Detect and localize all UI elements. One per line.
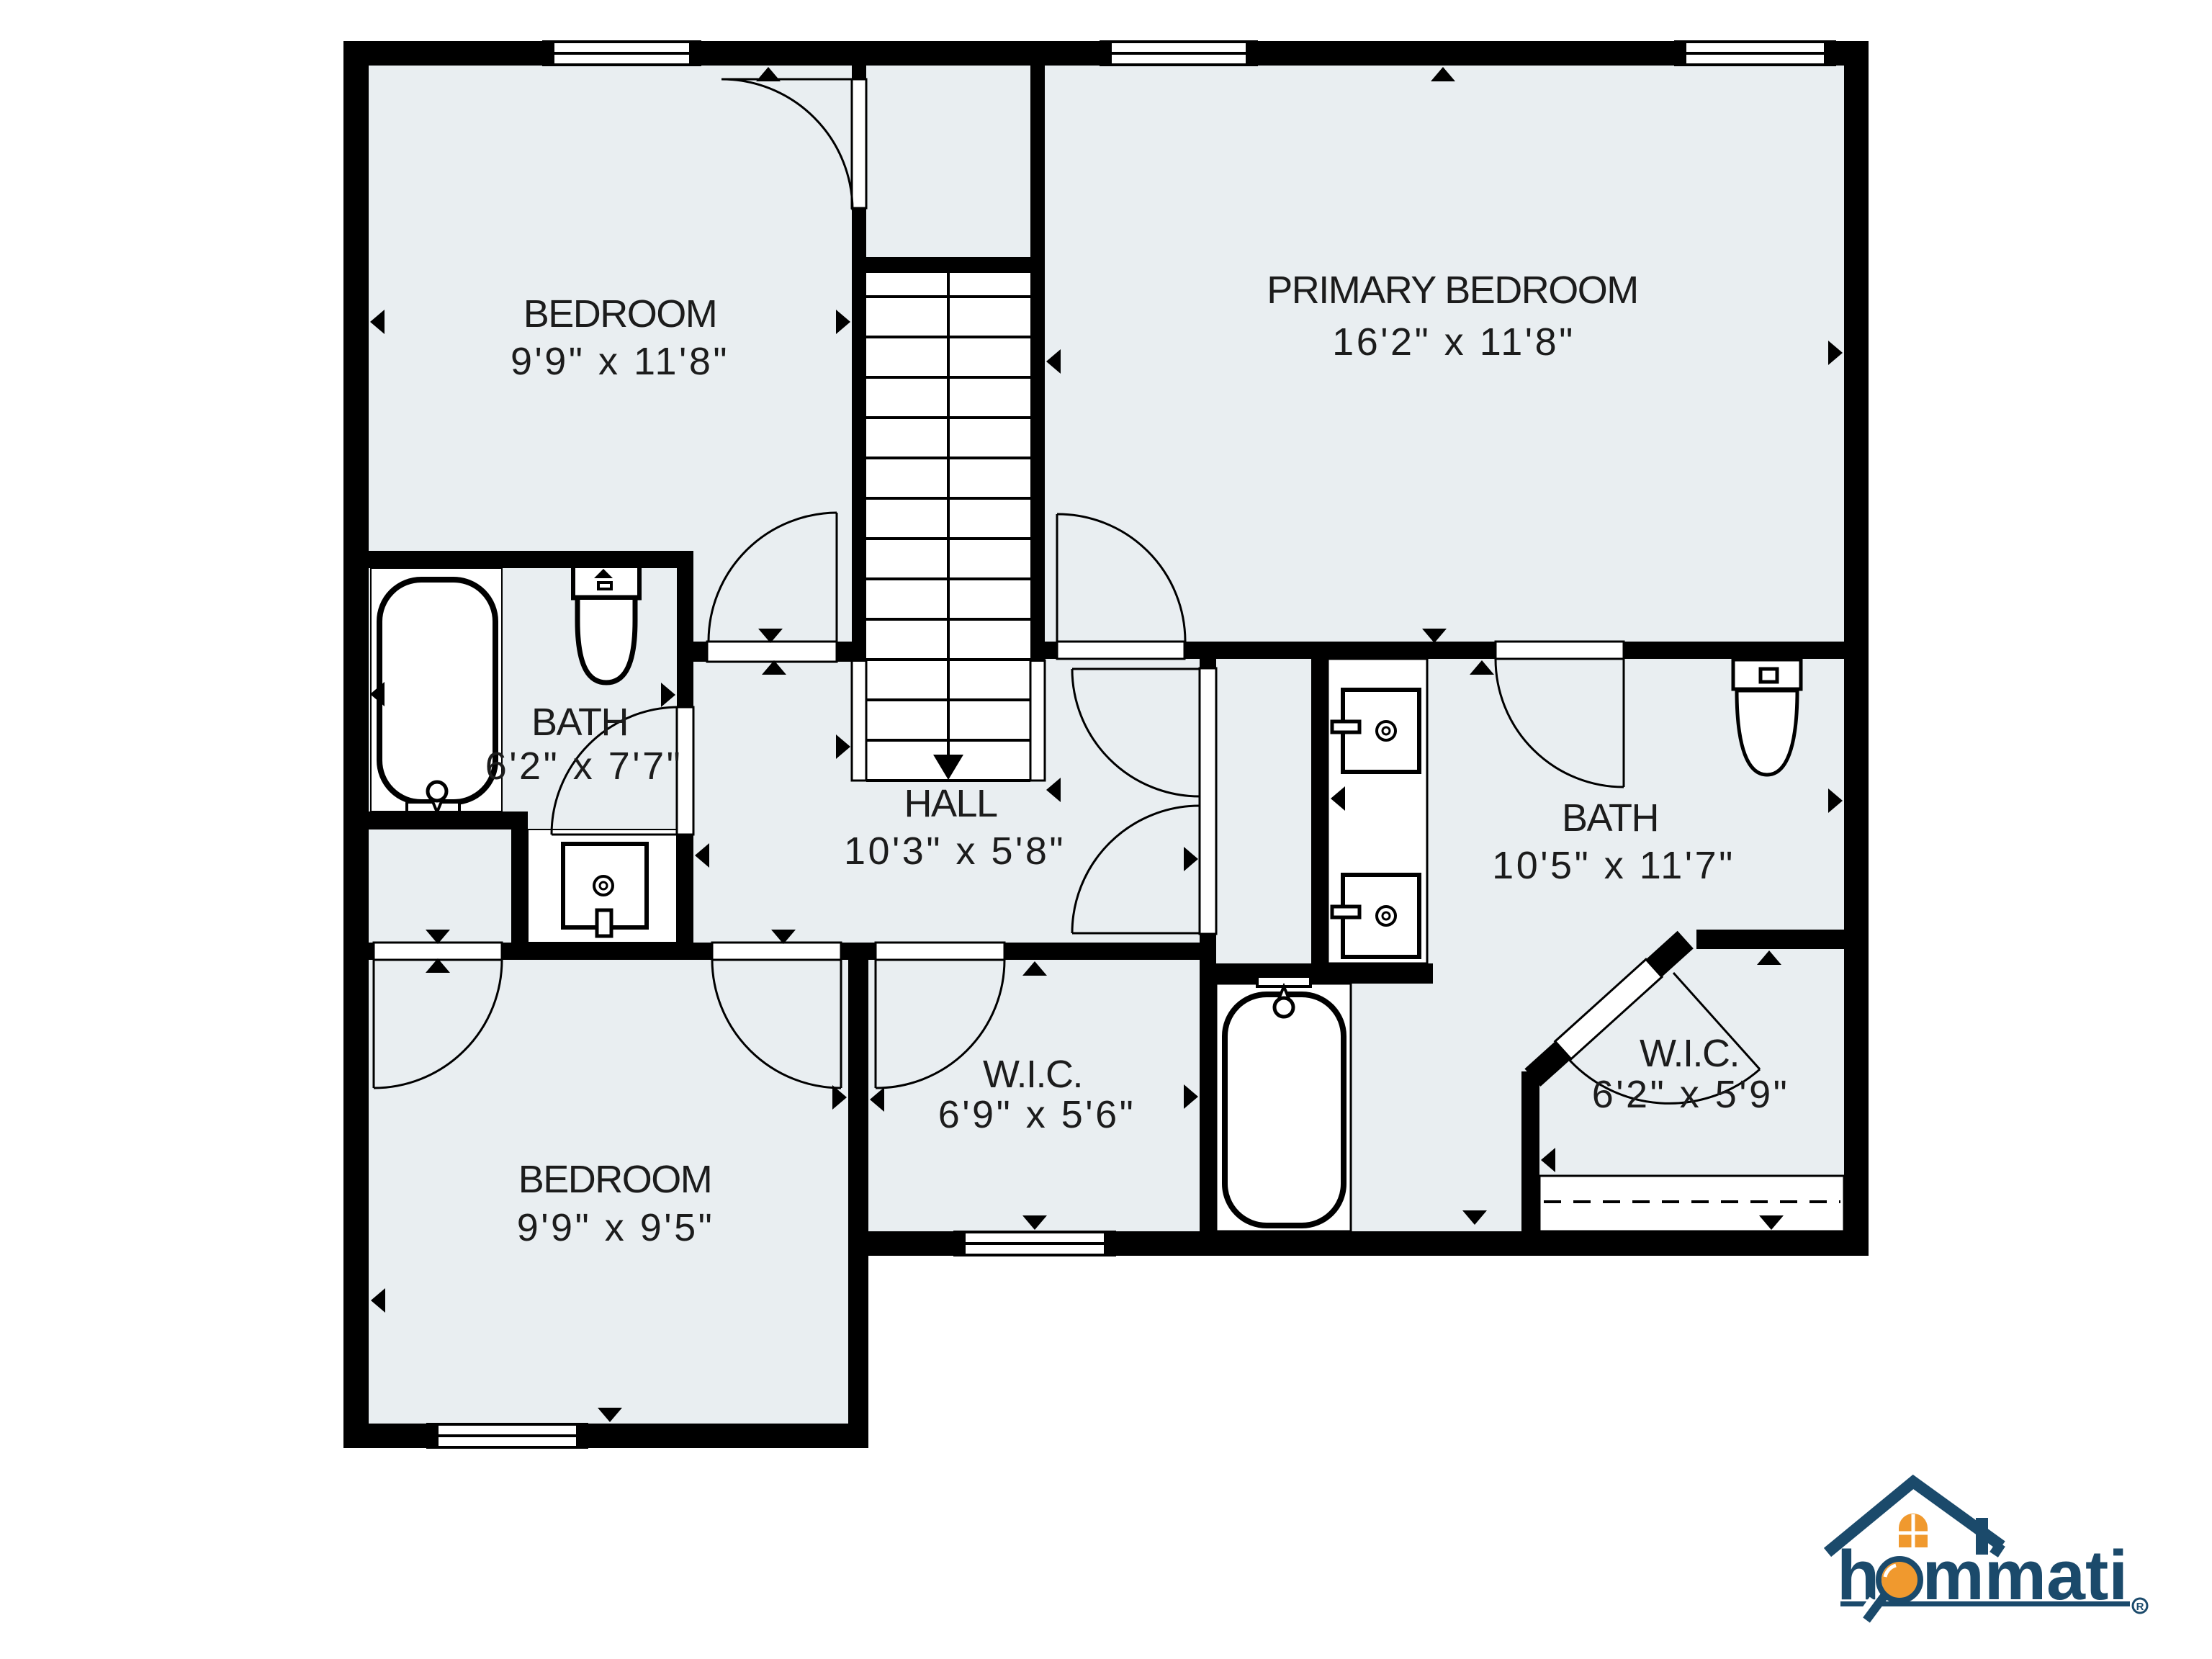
svg-text:PRIMARY BEDROOM: PRIMARY BEDROOM <box>1267 269 1638 312</box>
svg-text:10'3" x 5'8": 10'3" x 5'8" <box>844 829 1066 873</box>
svg-text:9'9" x 9'5": 9'9" x 9'5" <box>517 1206 715 1249</box>
svg-text:W.I.C.: W.I.C. <box>1640 1032 1739 1075</box>
svg-text:16'2" x 11'8": 16'2" x 11'8" <box>1332 320 1575 364</box>
svg-text:6'2" x 7'7": 6'2" x 7'7" <box>485 745 683 788</box>
svg-text:R: R <box>2136 1601 2144 1613</box>
svg-text:6'9" x 5'6": 6'9" x 5'6" <box>938 1093 1136 1136</box>
svg-text:9'9" x 11'8": 9'9" x 11'8" <box>511 340 729 383</box>
svg-text:HALL: HALL <box>904 782 997 825</box>
svg-text:BATH: BATH <box>1562 796 1658 840</box>
svg-text:6'2" x 5'9": 6'2" x 5'9" <box>1592 1073 1790 1116</box>
svg-text:10'5" x 11'7": 10'5" x 11'7" <box>1492 844 1735 887</box>
svg-text:BEDROOM: BEDROOM <box>518 1158 712 1201</box>
svg-text:W.I.C.: W.I.C. <box>983 1053 1082 1096</box>
svg-text:BATH: BATH <box>531 701 628 744</box>
svg-text:BEDROOM: BEDROOM <box>523 292 717 336</box>
